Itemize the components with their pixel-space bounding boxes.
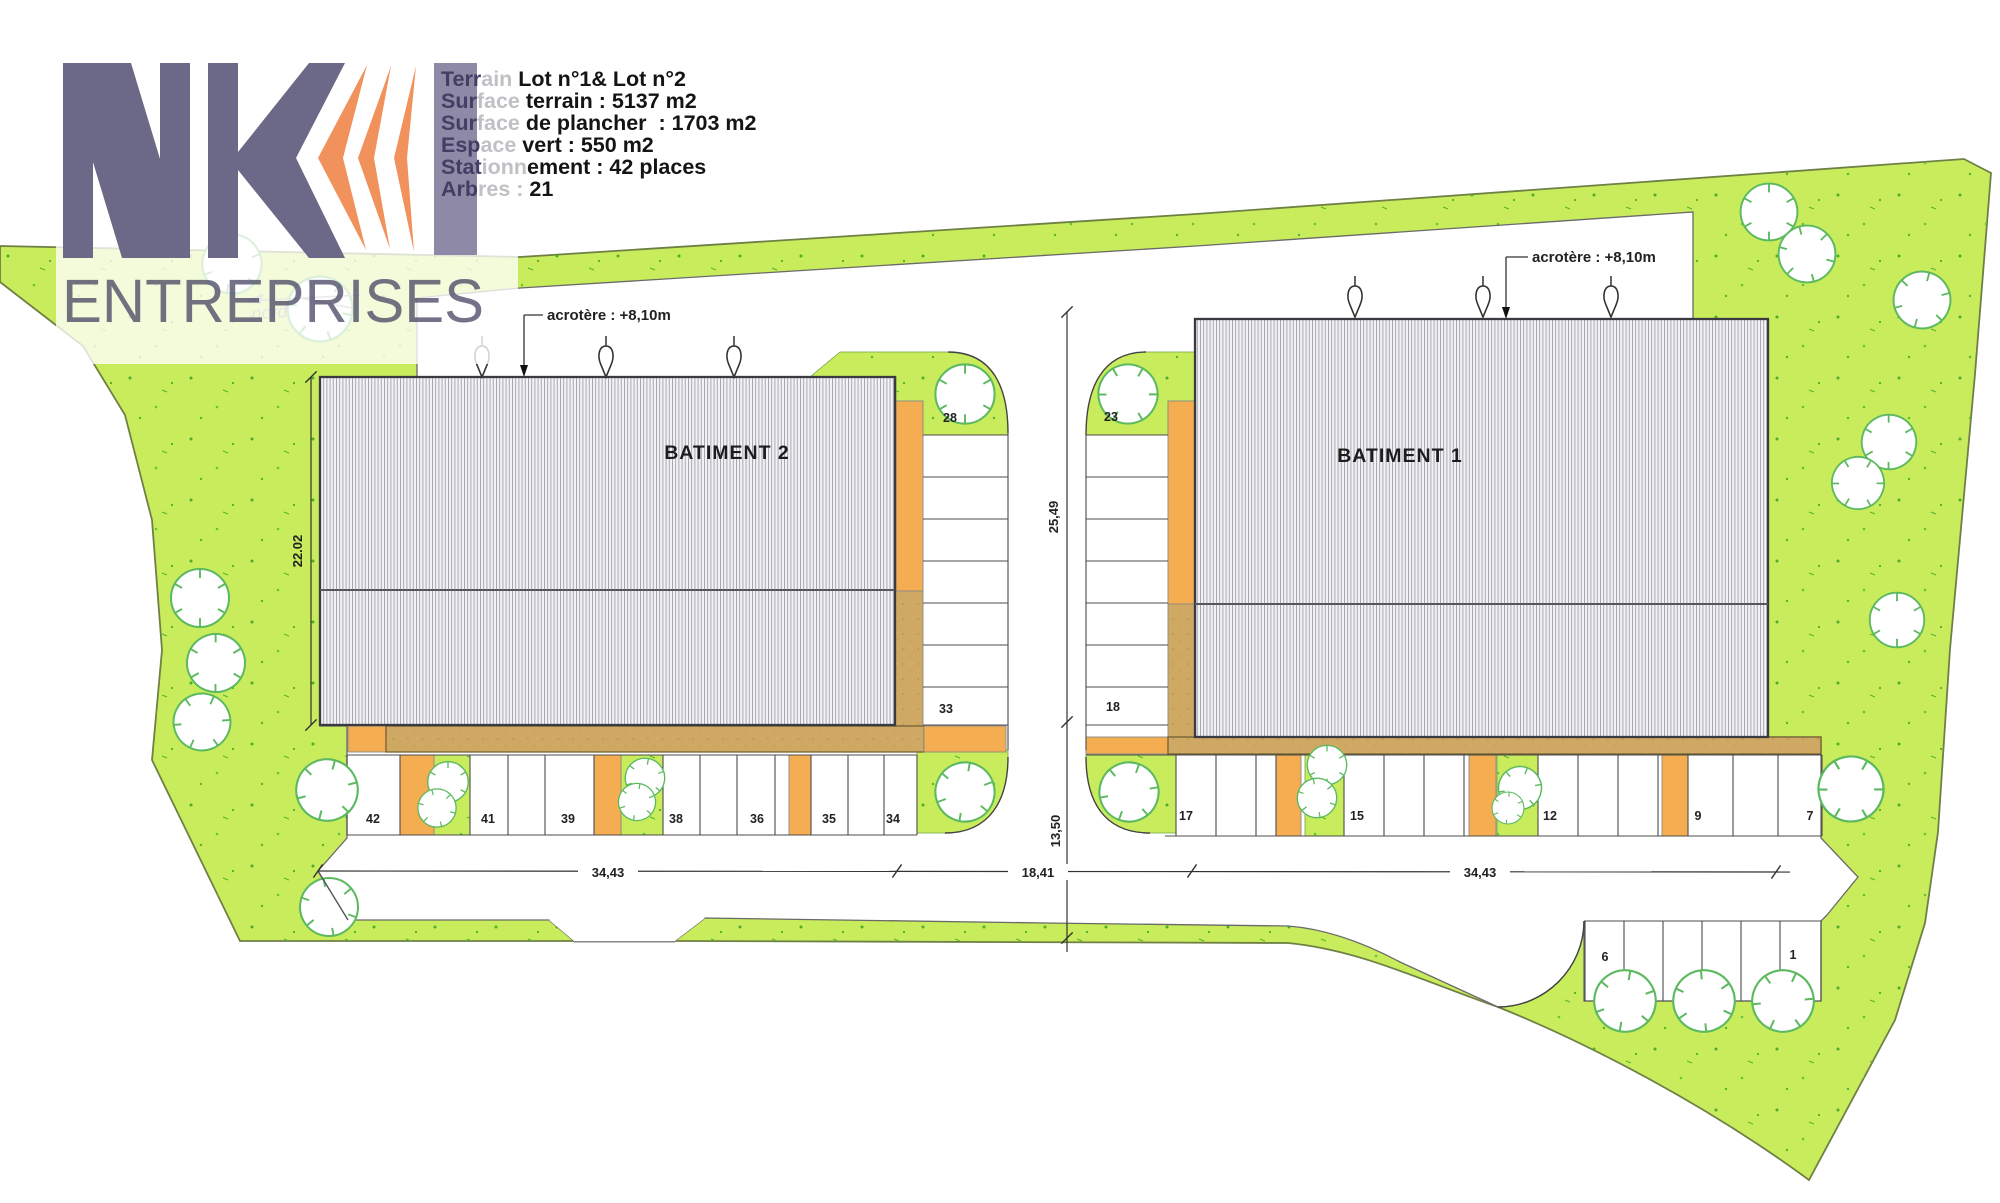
svg-text:Terrain Lot n°1& Lot n°2: Terrain Lot n°1& Lot n°2 — [441, 67, 686, 91]
svg-text:39: 39 — [561, 812, 575, 826]
svg-text:18: 18 — [1106, 700, 1120, 714]
svg-text:18,41: 18,41 — [1022, 865, 1055, 880]
svg-text:17: 17 — [1179, 809, 1193, 823]
svg-text:BATIMENT 2: BATIMENT 2 — [664, 442, 790, 464]
svg-text:1: 1 — [1790, 948, 1797, 962]
svg-text:acrotère : +8,10m: acrotère : +8,10m — [1532, 249, 1656, 266]
svg-text:25,49: 25,49 — [1046, 501, 1061, 534]
svg-text:34,43: 34,43 — [592, 865, 625, 880]
svg-text:38: 38 — [669, 812, 683, 826]
svg-text:13,50: 13,50 — [1048, 815, 1063, 848]
svg-text:acrotère : +8,10m: acrotère : +8,10m — [547, 307, 671, 324]
svg-text:Arbres : 21: Arbres : 21 — [441, 177, 553, 201]
svg-text:28: 28 — [943, 411, 957, 425]
svg-text:36: 36 — [750, 812, 764, 826]
svg-text:Surface de plancher : 1703 m2: Surface de plancher : 1703 m2 — [441, 111, 757, 135]
svg-text:Surface terrain : 5137 m2: Surface terrain : 5137 m2 — [441, 89, 697, 113]
svg-text:34: 34 — [886, 812, 900, 826]
svg-text:12: 12 — [1543, 809, 1557, 823]
svg-text:42: 42 — [366, 812, 380, 826]
svg-text:23: 23 — [1104, 410, 1118, 424]
svg-text:7: 7 — [1807, 809, 1814, 823]
svg-text:Stationnement : 42 places: Stationnement : 42 places — [441, 155, 706, 179]
svg-text:BATIMENT 1: BATIMENT 1 — [1337, 445, 1463, 467]
svg-text:Espace vert : 550 m2: Espace vert : 550 m2 — [441, 133, 654, 157]
svg-text:15: 15 — [1350, 809, 1364, 823]
svg-text:22.02: 22.02 — [290, 535, 305, 568]
svg-text:ENTREPRISES: ENTREPRISES — [62, 267, 484, 335]
svg-text:34,43: 34,43 — [1464, 865, 1497, 880]
svg-text:41: 41 — [481, 812, 495, 826]
svg-text:6: 6 — [1602, 950, 1609, 964]
svg-text:33: 33 — [939, 702, 953, 716]
svg-text:35: 35 — [822, 812, 836, 826]
svg-text:9: 9 — [1695, 809, 1702, 823]
